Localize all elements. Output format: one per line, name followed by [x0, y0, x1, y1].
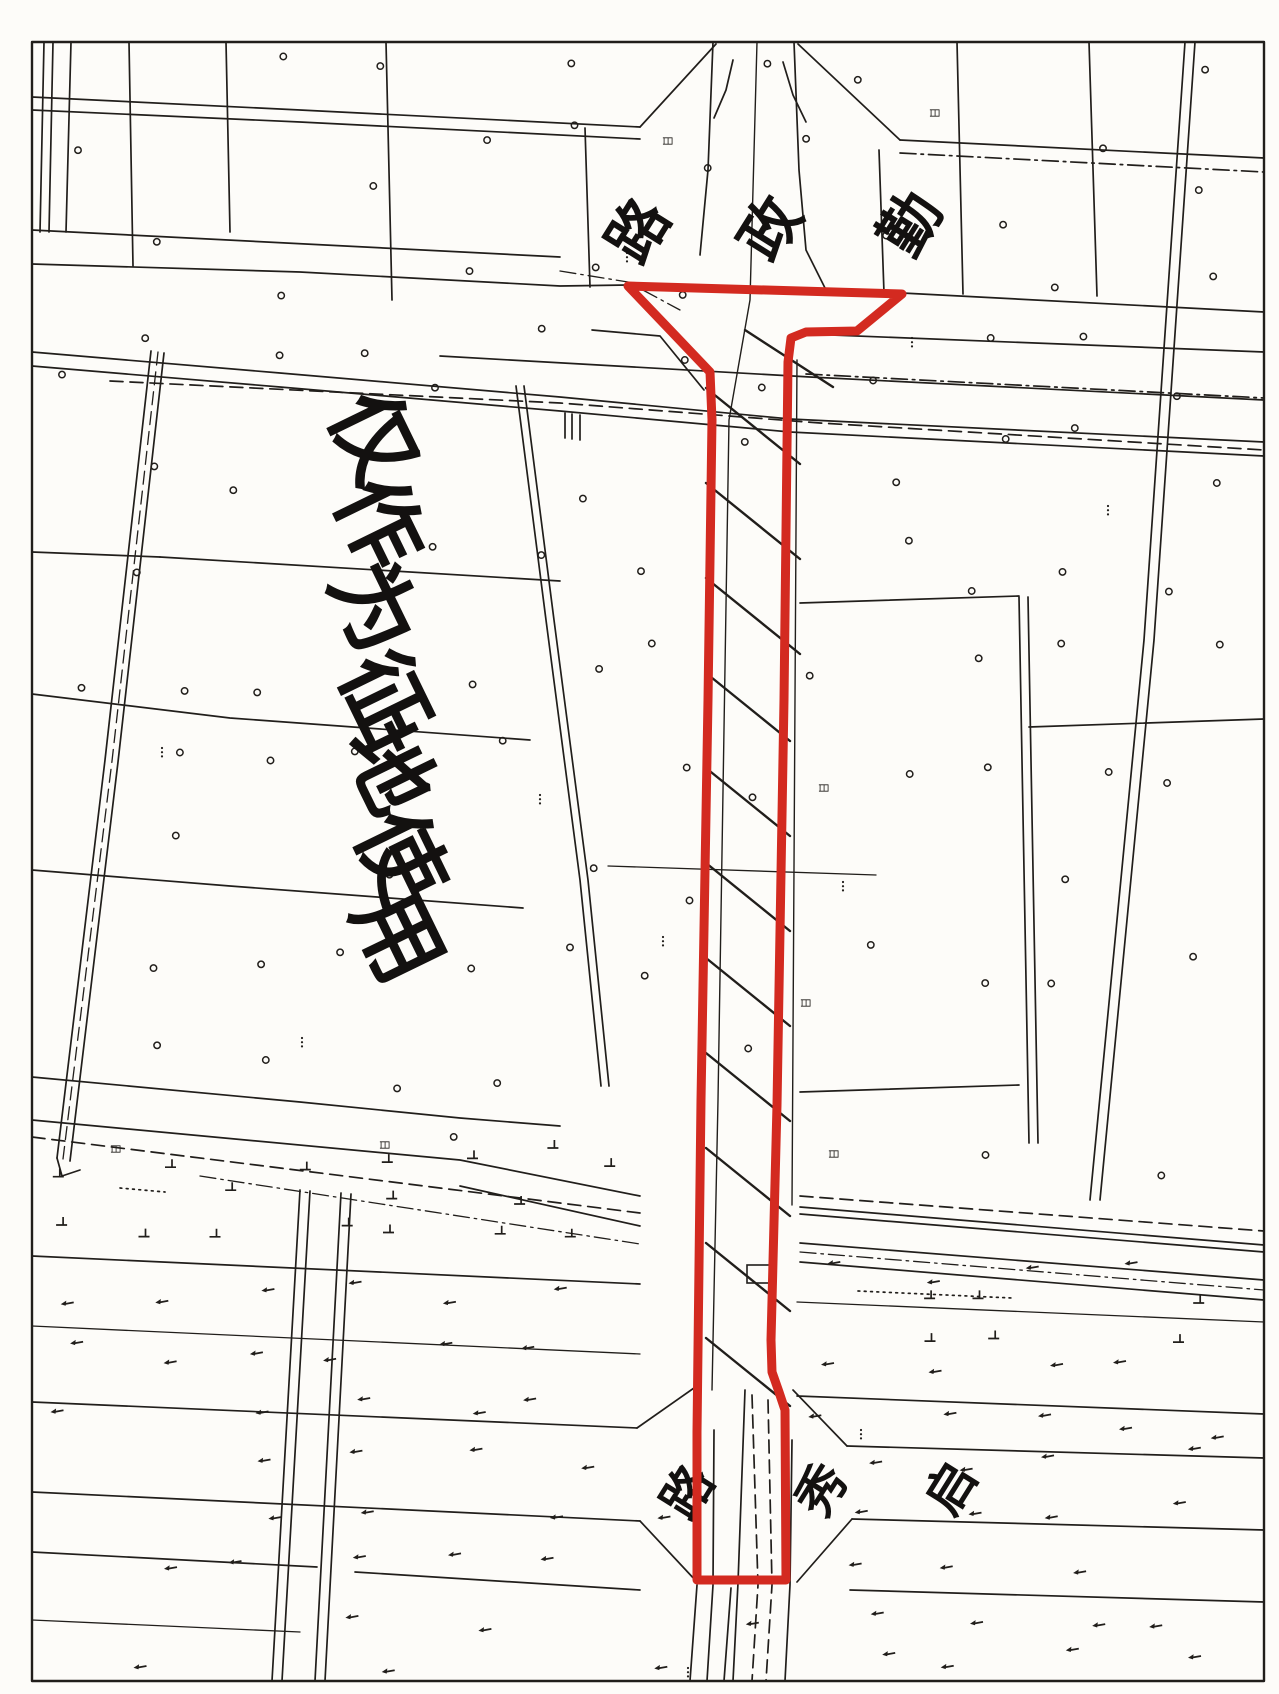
arrow-symbol-head [554, 1286, 560, 1291]
triple-dot-symbol [539, 794, 541, 796]
arrow-symbol-head [654, 1665, 660, 1670]
field-dot-symbol [484, 137, 490, 143]
parcel-line [800, 1243, 1264, 1280]
road-name-qixiu-char: 秀 [784, 1454, 859, 1527]
field-dot-symbol [154, 239, 160, 245]
field-dot-symbol [177, 749, 183, 755]
field-dot-symbol [173, 832, 179, 838]
arrow-symbol-head [1026, 1265, 1032, 1270]
triple-dot-symbol [842, 881, 844, 883]
tee-symbol [604, 1158, 615, 1166]
arrow-symbol-head [349, 1449, 355, 1454]
arrow-symbol-head [1119, 1426, 1125, 1431]
triple-dot-symbol [1107, 509, 1109, 511]
parcel-line [690, 1585, 697, 1681]
triple-dot-symbol [860, 1437, 862, 1439]
field-dot-symbol [759, 384, 765, 390]
parcel-line [57, 351, 151, 1158]
field-dot-symbol [807, 673, 813, 679]
field-dot-symbol [154, 1042, 160, 1048]
parcel-line [752, 1395, 758, 1681]
arrow-symbol-head [473, 1410, 479, 1415]
triple-dot-symbol [687, 1675, 689, 1677]
tee-symbol [386, 1191, 397, 1199]
tiny-kanji-symbol: 日 [928, 108, 940, 119]
field-dot-symbol [1048, 980, 1054, 986]
arrow-symbol-head [268, 1515, 274, 1520]
arrow-symbol-head [1092, 1622, 1098, 1627]
arrow-symbol-head [821, 1361, 827, 1366]
tee-symbol [300, 1162, 311, 1170]
field-dot-symbol [1058, 640, 1064, 646]
arrow-symbol-head [443, 1300, 449, 1305]
triple-dot-symbol [911, 345, 913, 347]
field-dot-symbol [684, 764, 690, 770]
field-dot-symbol [1202, 67, 1208, 73]
field-dot-symbol [907, 771, 913, 777]
parcel-line [32, 1620, 300, 1632]
parcel-line [32, 264, 628, 286]
field-dot-symbol [1059, 569, 1065, 575]
arrow-symbol-head [1188, 1654, 1194, 1659]
arrow-symbol-head [541, 1556, 547, 1561]
arrow-symbol-head [869, 1460, 875, 1465]
parcel-line [792, 360, 797, 1205]
parcel-line [957, 42, 963, 294]
parcel-line [608, 866, 876, 875]
parcel-line [1089, 42, 1097, 296]
field-dot-symbol [1158, 1172, 1164, 1178]
arrow-symbol-head [155, 1299, 161, 1304]
tee-symbol [925, 1333, 936, 1341]
tee-symbol [988, 1331, 999, 1339]
field-dot-symbol [642, 973, 648, 979]
parcel-line [315, 1193, 341, 1681]
parcel-line [797, 1519, 852, 1582]
parcel-line [852, 1519, 1264, 1530]
parcel-line [355, 1572, 640, 1590]
parcel-line [226, 42, 230, 232]
arrow-symbol-head [349, 1280, 355, 1285]
field-dot-symbol [649, 640, 655, 646]
field-dot-symbol [1106, 769, 1112, 775]
arrow-symbol-head [1149, 1623, 1155, 1628]
arrow-symbol-head [1188, 1446, 1194, 1451]
parcel-line [902, 293, 1264, 312]
parcel-line [32, 1402, 637, 1428]
field-dot-symbol [764, 61, 770, 67]
field-dot-symbol [1000, 222, 1006, 228]
field-dot-symbol [59, 371, 65, 377]
field-dot-symbol [267, 757, 273, 763]
parcel-line [70, 353, 164, 1161]
parcel-line [640, 44, 716, 127]
arrow-symbol-head [134, 1664, 140, 1669]
parcel-line [900, 140, 1264, 158]
arrow-symbol-head [345, 1614, 351, 1619]
field-dot-symbol [580, 495, 586, 501]
triple-dot-symbol [911, 337, 913, 339]
parcel-line [806, 334, 1264, 352]
tee-symbol [210, 1229, 221, 1237]
arrow-symbol-head [941, 1664, 947, 1669]
field-dot-symbol [181, 688, 187, 694]
field-dot-symbol [568, 60, 574, 66]
parcel-line [120, 1188, 165, 1192]
field-dot-symbol [469, 681, 475, 687]
triple-dot-symbol [860, 1429, 862, 1431]
tee-symbol [56, 1217, 67, 1225]
arrow-symbol-head [940, 1565, 946, 1570]
field-dot-symbol [682, 357, 688, 363]
triple-dot-symbol [539, 802, 541, 804]
field-dot-symbol [370, 183, 376, 189]
tiny-kanji-symbol: 日 [817, 783, 829, 794]
field-dot-symbol [982, 980, 988, 986]
parcel-line [585, 128, 590, 287]
arrow-symbol-head [258, 1458, 264, 1463]
parcel-line [325, 1194, 351, 1681]
arrow-symbol-head [523, 1397, 529, 1402]
field-dot-symbol [258, 961, 264, 967]
arrow-symbol-head [164, 1565, 170, 1570]
field-dot-symbol [468, 965, 474, 971]
field-dot-symbol [893, 479, 899, 485]
triple-dot-symbol [687, 1671, 689, 1673]
parcel-line [640, 1521, 697, 1582]
parcel-line [797, 1302, 1264, 1322]
field-dot-symbol [451, 1134, 457, 1140]
arrow-symbol-head [61, 1301, 67, 1306]
field-dot-symbol [1217, 641, 1223, 647]
field-dot-symbol [539, 326, 545, 332]
field-dot-symbol [150, 965, 156, 971]
field-dot-symbol [686, 897, 692, 903]
triple-dot-symbol [161, 747, 163, 749]
arrow-symbol-head [1113, 1359, 1119, 1364]
triple-dot-symbol [539, 798, 541, 800]
parcel-line [1028, 597, 1038, 1143]
arrow-symbol-head [969, 1511, 975, 1516]
parcel-line [707, 1430, 714, 1681]
parcel-line [32, 1492, 640, 1521]
triple-dot-symbol [301, 1037, 303, 1039]
tee-symbol [467, 1150, 478, 1158]
parcel-line [794, 42, 826, 290]
parcel-line [800, 1252, 1264, 1290]
field-dot-symbol [1166, 588, 1172, 594]
parcel-line [32, 97, 640, 127]
field-dot-symbol [263, 1057, 269, 1063]
arrow-symbol-head [469, 1447, 475, 1452]
arrow-symbol-head [1050, 1362, 1056, 1367]
field-dot-symbol [591, 865, 597, 871]
field-dot-symbol [567, 944, 573, 950]
arrow-symbol-head [250, 1351, 256, 1356]
arrow-symbol-head [1125, 1260, 1131, 1265]
parcel-line [700, 42, 713, 255]
arrow-symbol-head [521, 1345, 527, 1350]
parcel-line [32, 110, 640, 139]
arrow-symbol-head [478, 1627, 484, 1632]
arrow-symbol-head [970, 1620, 976, 1625]
arrow-symbol-head [323, 1357, 329, 1362]
parcel-line [800, 596, 1019, 603]
tee-symbol [139, 1229, 150, 1237]
arrow-symbol-head [448, 1552, 454, 1557]
arrow-symbol-head [164, 1360, 170, 1365]
field-dot-symbol [494, 1080, 500, 1086]
parcel-line [516, 386, 601, 1086]
field-dot-symbol [855, 77, 861, 83]
parcel-line [766, 1400, 772, 1681]
watermark-char: 为 [309, 547, 435, 669]
arrow-symbol-head [1066, 1647, 1072, 1652]
tiny-kanji-symbol: 日 [827, 1149, 839, 1160]
triple-dot-symbol [1107, 513, 1109, 515]
parcel-line [32, 1552, 317, 1567]
field-dot-symbol [982, 1152, 988, 1158]
parcel-line [32, 694, 530, 740]
arrow-symbol-head [657, 1515, 663, 1520]
field-dot-symbol [377, 63, 383, 69]
parcel-line [32, 230, 560, 257]
arrow-symbol-head [882, 1651, 888, 1656]
field-dot-symbol [985, 764, 991, 770]
arrow-symbol-head [581, 1465, 587, 1470]
field-dot-symbol [75, 147, 81, 153]
arrow-symbol-head [382, 1668, 388, 1673]
field-dot-symbol [906, 538, 912, 544]
field-dot-symbol [680, 292, 686, 298]
parcel-line [386, 42, 392, 300]
arrow-symbol-head [849, 1562, 855, 1567]
arrow-symbol-head [1045, 1515, 1051, 1520]
tiny-kanji-symbol: 日 [661, 136, 673, 147]
field-dot-symbol [638, 568, 644, 574]
parcel-line [637, 1388, 694, 1428]
field-dot-symbol [596, 666, 602, 672]
field-dot-symbol [1214, 480, 1220, 486]
parcel-line [592, 330, 704, 390]
arrow-symbol-head [1041, 1454, 1047, 1459]
tee-symbol [342, 1218, 353, 1226]
tee-symbol [1193, 1295, 1204, 1303]
tee-symbol [547, 1140, 558, 1148]
parcel-line [1090, 42, 1185, 1200]
parcel-line [32, 1120, 640, 1196]
triple-dot-symbol [860, 1433, 862, 1435]
triple-dot-symbol [161, 751, 163, 753]
arrow-symbol-head [1038, 1413, 1044, 1418]
parcel-line [32, 1077, 560, 1126]
field-dot-symbol [337, 949, 343, 955]
arrow-symbol-head [357, 1396, 363, 1401]
arrow-symbol-head [943, 1411, 949, 1416]
parcel-line [66, 42, 71, 232]
tee-symbol [495, 1226, 506, 1234]
parcel-line [798, 44, 900, 140]
field-dot-symbol [254, 689, 260, 695]
parcel-line [440, 356, 1264, 400]
parcel-line [1100, 42, 1195, 1200]
road-name-qinzheng-char: 路 [595, 187, 683, 274]
arrow-symbol-head [361, 1509, 367, 1514]
triple-dot-symbol [911, 341, 913, 343]
field-dot-symbol [749, 794, 755, 800]
arrow-symbol-head [929, 1369, 935, 1374]
field-dot-symbol [538, 552, 544, 558]
field-dot-symbol [1164, 780, 1170, 786]
arrow-symbol-head [1073, 1569, 1079, 1574]
field-dot-symbol [230, 487, 236, 493]
arrow-symbol-head [1173, 1500, 1179, 1505]
field-dot-symbol [742, 439, 748, 445]
tee-symbol [1173, 1334, 1184, 1342]
parcel-line [847, 1446, 1264, 1458]
field-dot-symbol [976, 655, 982, 661]
tee-symbol [165, 1159, 176, 1167]
parcel-line [129, 42, 133, 266]
tiny-kanji-symbol: 日 [799, 998, 811, 1009]
parcel-line [40, 42, 44, 232]
scanned-survey-map: 日日日日日日日 勤政路启秀路仅作为征地使用 [0, 0, 1279, 1694]
triple-dot-symbol [842, 889, 844, 891]
field-dot-symbol [142, 335, 148, 341]
triple-dot-symbol [301, 1045, 303, 1047]
arrow-symbol-head [871, 1611, 877, 1616]
field-dot-symbol [1003, 436, 1009, 442]
tee-symbol [383, 1225, 394, 1233]
parcel-line [800, 1214, 1264, 1252]
arrow-symbol-head [808, 1413, 814, 1418]
triple-dot-symbol [301, 1041, 303, 1043]
field-dot-symbol [868, 942, 874, 948]
field-dot-symbol [988, 335, 994, 341]
arrow-symbol-head [746, 1621, 752, 1626]
triple-dot-symbol [626, 260, 628, 262]
arrow-symbol-head [1211, 1435, 1217, 1440]
field-dot-symbol [78, 685, 84, 691]
field-dot-symbol [1080, 333, 1086, 339]
tee-symbol [382, 1154, 393, 1162]
field-dot-symbol [1196, 187, 1202, 193]
survey-map-canvas: 日日日日日日日 勤政路启秀路仅作为征地使用 [0, 0, 1279, 1694]
parcel-line [724, 1588, 731, 1681]
arrow-symbol-head [51, 1409, 57, 1414]
hatch-line [706, 673, 790, 741]
field-dot-symbol [276, 352, 282, 358]
field-dot-symbol [466, 268, 472, 274]
parcel-line [32, 366, 1264, 456]
tee-symbol [225, 1182, 236, 1190]
triple-dot-symbol [687, 1667, 689, 1669]
arrow-symbol-head [353, 1554, 359, 1559]
parcel-line [800, 1085, 1019, 1092]
arrow-symbol-head [70, 1340, 76, 1345]
triple-dot-symbol [662, 936, 664, 938]
map-labels-layer: 勤政路启秀路仅作为征地使用 [309, 181, 988, 1528]
parcel-line [49, 42, 53, 232]
parcel-line [63, 352, 158, 1159]
triple-dot-symbol [1107, 505, 1109, 507]
field-dot-symbol [280, 53, 286, 59]
arrow-symbol-head [855, 1509, 861, 1514]
triple-dot-symbol [662, 940, 664, 942]
parcel-line [524, 386, 609, 1086]
parcel-line [1019, 597, 1029, 1143]
parcel-line [797, 1396, 1264, 1414]
field-dot-symbol [362, 350, 368, 356]
parcel-line [714, 60, 733, 118]
parcel-line [850, 1590, 1264, 1602]
triple-dot-symbol [842, 885, 844, 887]
tiny-kanji-symbol: 日 [378, 1140, 390, 1151]
arrow-symbol-head [261, 1287, 267, 1292]
tiny-kanji-symbol: 日 [109, 1144, 121, 1155]
parcel-line [32, 1326, 640, 1354]
field-dot-symbol [803, 136, 809, 142]
parcel-line [32, 352, 1264, 442]
field-dot-symbol [1052, 284, 1058, 290]
triple-dot-symbol [161, 755, 163, 757]
field-dot-symbol [969, 588, 975, 594]
arrow-symbol-head [927, 1279, 933, 1284]
field-dot-symbol [278, 292, 284, 298]
field-dot-symbol [745, 1045, 751, 1051]
field-dot-symbol [1210, 273, 1216, 279]
field-dot-symbol [1062, 876, 1068, 882]
parcel-line [858, 1291, 1012, 1298]
field-dot-symbol [1190, 954, 1196, 960]
field-dot-symbol [394, 1085, 400, 1091]
triple-dot-symbol [662, 944, 664, 946]
parcel-line [733, 1390, 745, 1681]
field-dot-symbol [593, 264, 599, 270]
field-dot-symbol [1072, 425, 1078, 431]
